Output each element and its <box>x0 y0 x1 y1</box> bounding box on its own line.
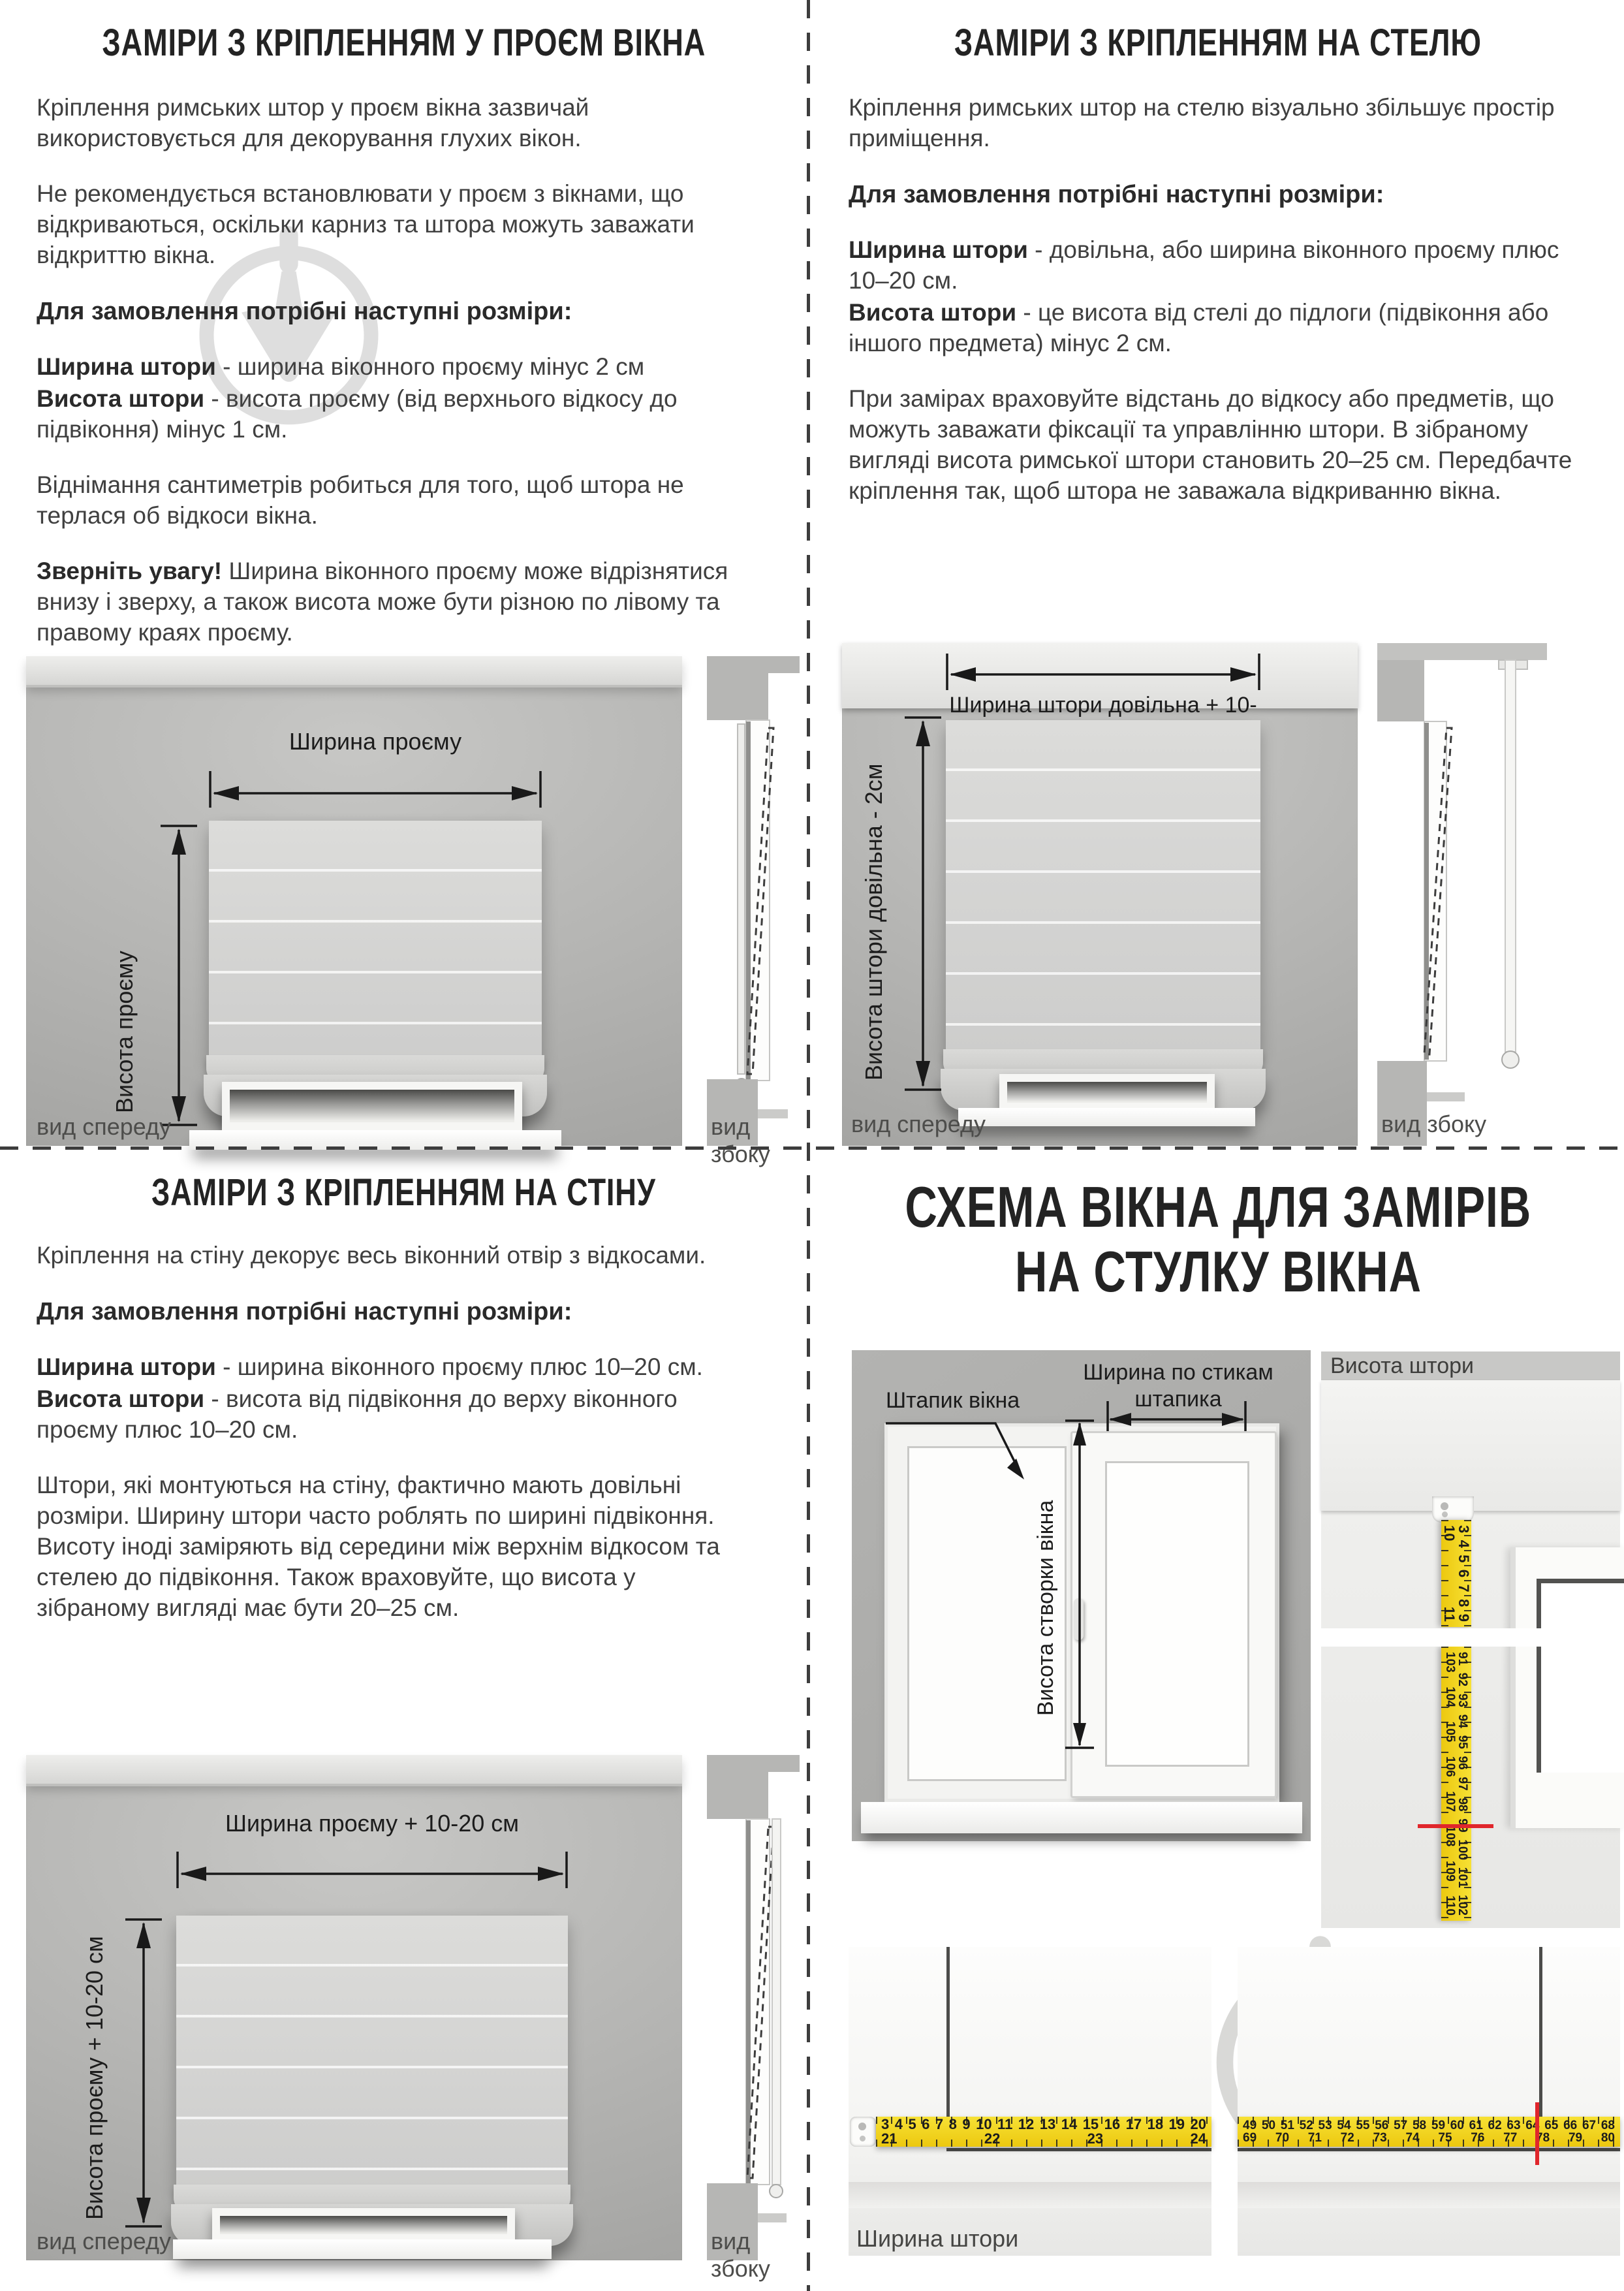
height-dimension-arrow-icon <box>161 825 197 1126</box>
bead-pointer-arrow-icon <box>884 1418 1041 1490</box>
photo-left-half <box>849 1947 1211 2256</box>
measuring-tape-vertical-bottom: 91 92 93 94 95 96 97 98 99 100 101 102 1… <box>1441 1647 1471 1921</box>
front-view-caption: вид спереду <box>851 1111 986 1138</box>
side-view-caption: вид збоку <box>1381 1111 1486 1138</box>
window-frame-line <box>1539 1947 1542 2118</box>
measuring-tape-vertical-top: 3 4 5 6 7 8 9 10 11 <box>1441 1520 1471 1627</box>
window <box>999 1074 1215 1111</box>
panel-header: Висота штори <box>1321 1351 1620 1380</box>
ceiling-side-view-figure: вид збоку <box>1377 643 1547 1146</box>
wall-width-dimension-label: Ширина проєму + 10-20 см <box>176 1810 568 1837</box>
window-glass <box>230 1090 514 1122</box>
windowsill <box>173 2239 552 2259</box>
vertical-dashed-divider <box>807 0 810 2291</box>
side-view-sketch-icon <box>707 656 800 1146</box>
window-glass <box>220 2216 507 2234</box>
size-item-height: Висота штори - висота від підвіконня до … <box>37 1384 745 1446</box>
bead-width-arrow-icon <box>1106 1401 1247 1431</box>
ceiling-size-list: Ширина штори - довільна, або ширина віко… <box>849 235 1580 359</box>
opening-attention-paragraph: Зверніть увагу! Ширина віконного проєму … <box>37 556 745 648</box>
roman-shade <box>946 720 1260 1073</box>
width-dimension-arrow-icon <box>176 1852 568 1888</box>
cornice <box>26 1755 682 1784</box>
opening-title-text: ЗАМІРИ З КРІПЛЕННЯМ У ПРОЄМ ВІКНА <box>102 24 706 63</box>
size-item-height: Висота штори - це висота від стелі до пі… <box>849 298 1580 359</box>
ceiling-height-dimension-label: Висота штори довільна - 2см <box>860 763 888 1081</box>
instruction-sheet: ЗАМІРИ З КРІПЛЕННЯМ У ПРОЄМ ВІКНА Кріпле… <box>0 0 1624 2291</box>
tape-numbers: 91 92 93 94 95 96 97 98 99 100 101 102 1… <box>1444 1652 1469 1916</box>
size-desc: - ширина віконного проєму плюс 10–20 см. <box>216 1353 703 1380</box>
tape-numbers: 49 50 51 52 53 54 55 56 57 58 59 60 61 6… <box>1243 2119 1615 2144</box>
tape-hook <box>850 2117 876 2147</box>
wall-order-heading: Для замовлення потрібні наступні розміри… <box>37 1296 745 1327</box>
side-view-caption: вид збоку <box>711 1113 800 1168</box>
ceiling-tips-paragraph: При замірах враховуйте відстань до відко… <box>849 384 1580 507</box>
wall-size-list: Ширина штори - ширина віконного проєму п… <box>37 1352 745 1446</box>
photo-splice-gap <box>1321 1628 1620 1647</box>
height-dimension-arrow-icon <box>125 1918 162 2228</box>
window-frame-line <box>946 1947 950 2118</box>
roman-shade <box>209 821 542 1079</box>
ceiling-section-title: ЗАМІРИ З КРІПЛЕННЯМ НА СТЕЛЮ <box>812 24 1624 63</box>
curtain-height-caption: Висота штори <box>1330 1353 1474 1379</box>
width-dimension-arrow-icon <box>946 654 1260 690</box>
side-view-caption: вид збоку <box>711 2228 800 2283</box>
sash-height-label: Висота створки вікна <box>1033 1500 1059 1716</box>
opening-front-view-figure: Ширина проєму Висота проєму вид спереду <box>26 656 682 1146</box>
tape-bracket <box>1432 1496 1474 1523</box>
window <box>222 1082 522 1130</box>
size-item-width: Ширина штори - довільна, або ширина віко… <box>849 235 1580 296</box>
opening-intro-paragraph: Кріплення римських штор у проєм вікна за… <box>37 93 745 154</box>
size-desc: - ширина віконного проєму мінус 2 см <box>216 353 644 380</box>
width-dimension-arrow-icon <box>209 771 542 808</box>
red-measure-mark <box>1418 1824 1493 1828</box>
opening-order-heading: Для замовлення потрібні наступні розміри… <box>37 296 745 327</box>
wall-title-text: ЗАМІРИ З КРІПЛЕННЯМ НА СТІНУ <box>151 1173 656 1213</box>
window-frame-line <box>946 2148 1211 2151</box>
ceiling-area <box>1321 1380 1620 1511</box>
height-dimension-arrow-icon <box>905 716 941 1091</box>
opening-size-list: Ширина штори - ширина віконного проєму м… <box>37 352 745 445</box>
sash-window-schematic: Штапик вікна Ширина по стикам штапика Ви… <box>852 1350 1311 1841</box>
measuring-tape-horizontal-left: 3 4 5 6 7 8 9 10 11 12 13 14 15 16 17 18… <box>876 2117 1211 2147</box>
horizontal-dashed-divider <box>0 1146 1624 1150</box>
attention-lead: Зверніть увагу! <box>37 558 222 584</box>
tape-numbers: 3 4 5 6 7 8 9 10 11 <box>1442 1525 1471 1622</box>
tape-numbers: 3 4 5 6 7 8 9 10 11 12 13 14 15 16 17 18… <box>881 2117 1206 2146</box>
opening-text-column: Кріплення римських штор у проєм вікна за… <box>37 93 745 673</box>
windowsill <box>861 1802 1302 1833</box>
size-term: Висота штори <box>849 299 1016 326</box>
wall-side-view-figure: вид збоку <box>707 1755 800 2260</box>
ceiling-order-heading: Для замовлення потрібні наступні розміри… <box>849 179 1580 210</box>
wall-height-dimension-label: Висота проєму + 10-20 см <box>81 1936 108 2220</box>
sash-section-title: СХЕМА ВІКНА ДЛЯ ЗАМІРІВ НА СТУЛКУ ВІКНА <box>812 1175 1624 1304</box>
bead-width-label-line1: Ширина по стикам <box>1080 1359 1276 1386</box>
ceiling-title-text: ЗАМІРИ З КРІПЛЕННЯМ НА СТЕЛЮ <box>954 24 1482 63</box>
bead-label: Штапик вікна <box>886 1388 1020 1414</box>
window-frame-line <box>1238 2148 1620 2151</box>
window-glass-corner <box>1537 1579 1624 1773</box>
size-term: Ширина штори <box>849 236 1028 263</box>
sash-title-line2: НА СТУЛКУ ВІКНА <box>1014 1240 1421 1304</box>
sill-shadow <box>849 2182 1211 2208</box>
wall-section-title: ЗАМІРИ З КРІПЛЕННЯМ НА СТІНУ <box>0 1173 807 1213</box>
ceiling-text-column: Кріплення римських штор на стелю візуаль… <box>849 93 1580 531</box>
wall-text-column: Кріплення на стіну декорує весь віконний… <box>37 1240 745 1649</box>
curtain-width-caption: Ширина штори <box>856 2225 1018 2252</box>
size-term: Висота штори <box>37 385 204 412</box>
measuring-tape-horizontal-right: 49 50 51 52 53 54 55 56 57 58 59 60 61 6… <box>1238 2117 1620 2147</box>
opening-height-dimension-label: Висота проєму <box>111 951 138 1113</box>
opening-section-title: ЗАМІРИ З КРІПЛЕННЯМ У ПРОЄМ ВІКНА <box>0 24 807 63</box>
roman-shade <box>176 1916 568 2208</box>
window-glass <box>1007 1082 1207 1103</box>
opening-width-dimension-label: Ширина проєму <box>209 728 542 755</box>
front-view-caption: вид спереду <box>37 2228 171 2255</box>
opening-side-view-figure: вид збоку <box>707 656 800 1146</box>
side-view-sketch-icon <box>1377 643 1547 1146</box>
window <box>212 2208 515 2242</box>
wall-intro-paragraph: Кріплення на стіну декорує весь віконний… <box>37 1240 745 1271</box>
front-view-caption: вид спереду <box>37 1113 171 1141</box>
size-item-width: Ширина штори - ширина віконного проєму м… <box>37 352 745 383</box>
red-measure-mark <box>1535 2102 1539 2165</box>
windowsill <box>958 1108 1255 1126</box>
size-term: Ширина штори <box>37 1353 216 1380</box>
ceiling-intro-paragraph: Кріплення римських штор на стелю візуаль… <box>849 93 1580 154</box>
opening-explain-paragraph: Віднімання сантиметрів робиться для того… <box>37 470 745 531</box>
photo-right-half <box>1238 1947 1620 2256</box>
size-item-height: Висота штори - висота проєму (від верхнь… <box>37 384 745 445</box>
size-term: Висота штори <box>37 1385 204 1412</box>
wall-tips-paragraph: Штори, які монтуються на стіну, фактично… <box>37 1470 745 1624</box>
size-term: Ширина штори <box>37 353 216 380</box>
sash-height-arrow-icon <box>1065 1419 1094 1749</box>
opening-caution-paragraph: Не рекомендується встановлювати у проєм … <box>37 179 745 271</box>
size-item-width: Ширина штори - ширина віконного проєму п… <box>37 1352 745 1383</box>
curtain-height-photo-panel: Висота штори 3 4 5 6 7 8 9 10 11 91 92 9… <box>1321 1351 1620 1928</box>
cornice <box>26 656 682 685</box>
wall-front-view-figure: Ширина проєму + 10-20 см Висота проєму +… <box>26 1755 682 2260</box>
side-view-sketch-icon <box>707 1755 800 2260</box>
sill-shadow <box>1238 2182 1620 2208</box>
ceiling-front-view-figure: Ширина штори довільна + 10-20 см Висота … <box>842 643 1358 1146</box>
window-openable-sash-glass <box>1105 1461 1249 1767</box>
curtain-width-photo-panel: 3 4 5 6 7 8 9 10 11 12 13 14 15 16 17 18… <box>849 1947 1620 2256</box>
sash-title-line1: СХЕМА ВІКНА ДЛЯ ЗАМІРІВ <box>905 1175 1531 1240</box>
